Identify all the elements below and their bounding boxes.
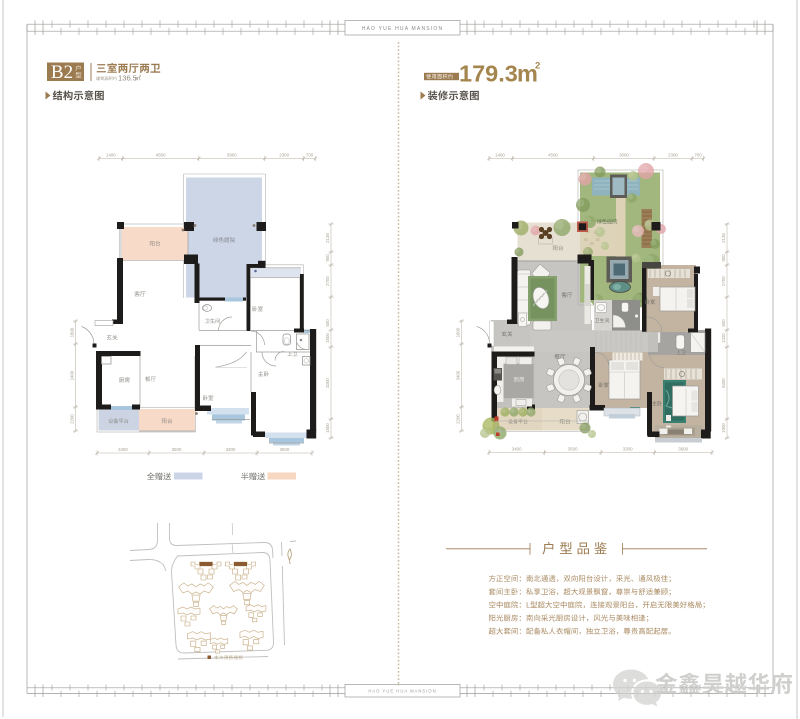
svg-text:B2: B2 — [51, 62, 73, 83]
svg-text:1500: 1500 — [325, 423, 330, 433]
svg-text:2400: 2400 — [70, 370, 75, 380]
svg-text:3300: 3300 — [325, 378, 330, 388]
svg-text:4500: 4500 — [156, 152, 166, 157]
svg-text:700: 700 — [306, 152, 314, 157]
svg-text:700: 700 — [694, 152, 702, 157]
svg-text:600: 600 — [721, 319, 726, 327]
svg-text:179.3: 179.3 — [459, 61, 518, 87]
svg-text:5350: 5350 — [721, 378, 726, 388]
svg-text:4500: 4500 — [548, 152, 558, 157]
svg-text:2300: 2300 — [668, 152, 678, 157]
svg-text:3400: 3400 — [512, 446, 522, 451]
svg-text:600: 600 — [325, 319, 330, 327]
svg-text:3900: 3900 — [227, 152, 237, 157]
svg-text:2200: 2200 — [456, 414, 461, 424]
svg-text:1400: 1400 — [495, 152, 505, 157]
svg-text:3300: 3300 — [623, 446, 633, 451]
svg-text:2300: 2300 — [279, 152, 289, 157]
svg-text:3500: 3500 — [568, 446, 578, 451]
svg-text:1800: 1800 — [456, 327, 461, 337]
svg-text:3450: 3450 — [118, 447, 128, 452]
svg-text:1500: 1500 — [325, 333, 330, 343]
svg-text:3000: 3000 — [619, 152, 629, 157]
svg-text:2135: 2135 — [721, 233, 726, 243]
svg-text:3600: 3600 — [678, 446, 688, 451]
svg-text:3600: 3600 — [280, 447, 290, 452]
svg-text:HAO YUE HUA MANSION: HAO YUE HUA MANSION — [362, 26, 444, 32]
svg-text:1900: 1900 — [721, 423, 726, 433]
svg-text:3300: 3300 — [226, 447, 236, 452]
svg-text:1320: 1320 — [721, 333, 726, 343]
svg-text:2135: 2135 — [325, 233, 330, 243]
svg-text:3400: 3400 — [456, 370, 461, 380]
svg-text:900: 900 — [325, 254, 330, 262]
svg-text:2700: 2700 — [325, 276, 330, 286]
svg-text:900: 900 — [721, 254, 726, 262]
svg-text:1400: 1400 — [106, 152, 116, 157]
svg-text:136.5: 136.5 — [118, 74, 137, 83]
svg-text:1800: 1800 — [70, 327, 75, 337]
svg-text:2: 2 — [535, 61, 540, 72]
svg-text:3500: 3500 — [172, 447, 182, 452]
svg-text:2200: 2200 — [70, 414, 75, 424]
svg-text:HAO YUE HUA MANSION: HAO YUE HUA MANSION — [368, 689, 436, 694]
svg-text:2700: 2700 — [721, 276, 726, 286]
